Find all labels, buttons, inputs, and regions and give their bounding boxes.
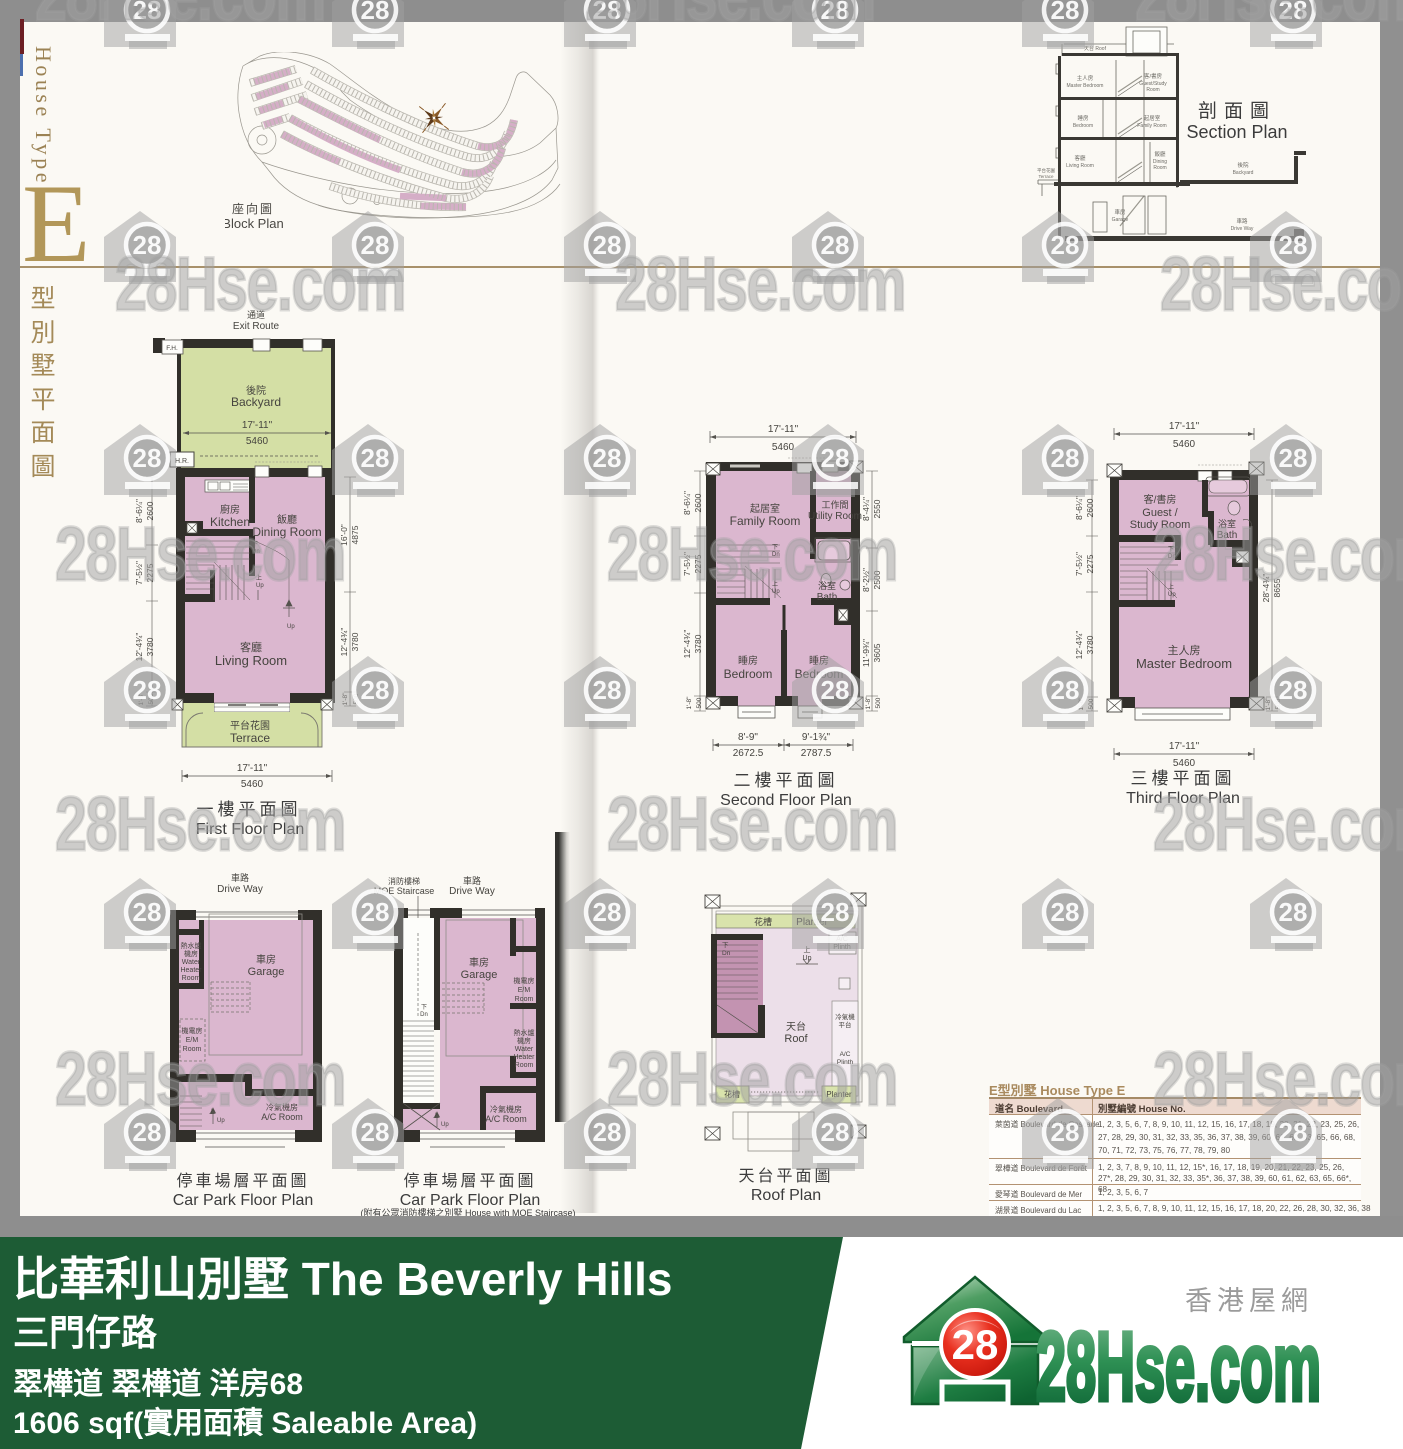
svg-text:1'-8": 1'-8" (686, 696, 693, 710)
svg-text:H.R.: H.R. (175, 458, 189, 465)
svg-text:Up: Up (287, 624, 295, 630)
svg-text:Dining Room: Dining Room (252, 525, 321, 539)
svg-text:First Floor Plan: First Floor Plan (196, 821, 304, 838)
svg-text:17'-11": 17'-11" (1169, 421, 1200, 432)
svg-text:500: 500 (1088, 698, 1095, 709)
svg-text:1'-8": 1'-8" (1078, 697, 1085, 711)
svg-text:上: 上 (804, 945, 811, 954)
svg-text:7'-5½": 7'-5½" (682, 552, 692, 576)
svg-text:Roof Plan: Roof Plan (751, 1187, 821, 1204)
svg-text:2550: 2550 (872, 499, 882, 518)
svg-text:上: 上 (772, 580, 778, 588)
svg-text:Room: Room (515, 996, 534, 1003)
svg-text:Dn: Dn (420, 1012, 428, 1018)
svg-text:Bedroom: Bedroom (724, 667, 773, 681)
svg-text:Backyard: Backyard (1233, 170, 1254, 176)
svg-text:Drive Way: Drive Way (449, 886, 495, 897)
svg-text:F.H.: F.H. (166, 345, 178, 352)
svg-text:Room: Room (515, 1062, 534, 1069)
svg-text:下: 下 (1168, 546, 1174, 553)
svg-text:A/C Room: A/C Room (485, 1114, 527, 1124)
svg-text:Bedroom: Bedroom (1073, 123, 1093, 129)
svg-text:Dn: Dn (252, 549, 260, 555)
svg-text:Bath: Bath (1217, 530, 1238, 541)
svg-text:車路: 車路 (231, 872, 249, 883)
svg-text:Terrace: Terrace (230, 731, 270, 745)
svg-text:2600: 2600 (1085, 498, 1095, 517)
svg-text:5460: 5460 (241, 779, 264, 790)
svg-text:Plinth: Plinth (837, 1059, 854, 1066)
svg-text:8'-6¼": 8'-6¼" (682, 491, 692, 515)
svg-text:5460: 5460 (772, 442, 795, 453)
svg-text:17'-11": 17'-11" (242, 420, 273, 431)
svg-text:機房: 機房 (184, 949, 198, 958)
svg-text:Living Room: Living Room (215, 653, 287, 668)
svg-text:睡房: 睡房 (809, 654, 829, 667)
svg-text:Up: Up (256, 583, 264, 589)
svg-text:Terrace: Terrace (1038, 174, 1054, 179)
svg-text:2672.5: 2672.5 (733, 748, 764, 759)
svg-text:Bedroom: Bedroom (795, 667, 844, 681)
svg-text:Up: Up (1168, 592, 1176, 598)
svg-text:客廳: 客廳 (240, 640, 262, 654)
svg-text:下: 下 (722, 941, 729, 949)
svg-text:通道: 通道 (247, 309, 265, 320)
svg-text:12'-4¾": 12'-4¾" (134, 633, 144, 662)
svg-text:3780: 3780 (145, 637, 155, 656)
svg-text:車房: 車房 (1114, 208, 1126, 216)
svg-text:8'-6¼": 8'-6¼" (134, 499, 144, 523)
svg-text:二樓平面圖: 二樓平面圖 (734, 771, 839, 790)
svg-text:1'-8": 1'-8" (342, 692, 349, 706)
svg-text:Heater: Heater (513, 1054, 535, 1061)
svg-text:機房: 機房 (517, 1036, 531, 1045)
svg-text:客/書房: 客/書房 (1144, 493, 1177, 506)
svg-text:Up: Up (217, 1118, 225, 1124)
svg-text:天台平面圖: 天台平面圖 (738, 1167, 833, 1185)
svg-text:Room: Room (183, 1046, 202, 1053)
svg-text:Room: Room (1153, 165, 1166, 171)
svg-text:Dn: Dn (722, 950, 731, 957)
svg-text:Backyard: Backyard (231, 395, 281, 409)
svg-text:500: 500 (875, 697, 882, 708)
svg-text:天台: 天台 (786, 1020, 806, 1033)
svg-text:Car Park Floor Plan: Car Park Floor Plan (400, 1192, 541, 1209)
svg-text:7'-5½": 7'-5½" (134, 561, 144, 585)
svg-text:7'-5½": 7'-5½" (1074, 552, 1084, 576)
svg-text:5460: 5460 (1173, 758, 1196, 769)
svg-text:Third Floor Plan: Third Floor Plan (1126, 790, 1240, 807)
svg-text:Garage: Garage (1112, 217, 1129, 223)
svg-text:Dn: Dn (1168, 554, 1176, 560)
svg-text:500: 500 (148, 693, 155, 704)
svg-text:熱水爐: 熱水爐 (181, 941, 202, 950)
svg-text:Master Bedroom: Master Bedroom (1136, 656, 1232, 671)
svg-text:Drive Way: Drive Way (1231, 226, 1254, 232)
svg-text:Room: Room (1146, 87, 1159, 93)
svg-text:客/書房: 客/書房 (1144, 72, 1163, 80)
svg-text:車房: 車房 (256, 953, 276, 966)
svg-text:8'-6¼": 8'-6¼" (1074, 496, 1084, 520)
svg-text:28: 28 (952, 1321, 999, 1368)
svg-text:Dn: Dn (772, 552, 780, 558)
svg-text:機電房: 機電房 (182, 1026, 203, 1035)
svg-text:Utility Room: Utility Room (808, 511, 862, 522)
svg-text:客廳: 客廳 (1074, 154, 1086, 162)
svg-text:1'-8": 1'-8" (138, 692, 145, 706)
svg-text:Water: Water (515, 1046, 534, 1053)
svg-text:剖面圖: 剖面圖 (1198, 100, 1276, 122)
svg-text:Block Plan: Block Plan (225, 216, 284, 231)
svg-text:8'-2½": 8'-2½" (861, 568, 871, 592)
svg-text:停車場層平面圖: 停車場層平面圖 (176, 1172, 309, 1190)
svg-text:Garage: Garage (248, 966, 285, 978)
svg-text:主人房: 主人房 (1077, 74, 1094, 82)
svg-text:2600: 2600 (693, 493, 703, 512)
svg-text:Family Room: Family Room (730, 514, 801, 528)
svg-text:Second Floor Plan: Second Floor Plan (720, 792, 852, 809)
svg-text:500: 500 (696, 697, 703, 708)
svg-text:Roof: Roof (784, 1033, 808, 1045)
svg-text:天台 Roof: 天台 Roof (1084, 45, 1107, 52)
svg-text:停車場層平面圖: 停車場層平面圖 (403, 1172, 536, 1190)
svg-text:起居室: 起居室 (1144, 114, 1161, 122)
svg-text:12'-4¾": 12'-4¾" (1074, 631, 1084, 660)
svg-text:Up: Up (772, 589, 780, 595)
svg-text:A/C: A/C (840, 1051, 851, 1058)
svg-text:Study Room: Study Room (1130, 519, 1191, 531)
svg-text:17'-11": 17'-11" (1169, 741, 1200, 752)
svg-text:16'-0": 16'-0" (339, 524, 349, 546)
svg-text:車房: 車房 (469, 956, 489, 969)
svg-text:Up: Up (441, 1122, 449, 1128)
svg-text:Family Room: Family Room (1137, 123, 1166, 129)
svg-text:A/C: A/C (836, 936, 848, 943)
svg-text:浴室: 浴室 (1218, 518, 1236, 529)
svg-text:上: 上 (433, 1112, 439, 1120)
svg-text:11'-9¾": 11'-9¾" (861, 639, 871, 667)
svg-text:睡房: 睡房 (1077, 114, 1089, 122)
svg-text:17'-11": 17'-11" (237, 763, 268, 774)
svg-text:冷氣機房: 冷氣機房 (266, 1102, 298, 1112)
svg-text:A/C Room: A/C Room (261, 1112, 303, 1122)
svg-text:4875: 4875 (350, 525, 360, 544)
svg-text:座向圖: 座向圖 (232, 201, 274, 216)
svg-text:3780: 3780 (350, 632, 360, 651)
svg-text:8655: 8655 (1272, 578, 1282, 597)
svg-text:2275: 2275 (1085, 554, 1095, 573)
svg-text:2787.5: 2787.5 (801, 748, 832, 759)
svg-text:工作間: 工作間 (821, 499, 848, 510)
svg-text:5460: 5460 (1173, 439, 1196, 450)
svg-text:一樓平面圖: 一樓平面圖 (197, 800, 302, 819)
svg-text:花槽: 花槽 (754, 916, 772, 927)
svg-text:消防樓梯: 消防樓梯 (388, 876, 420, 886)
svg-text:Car Park Floor Plan: Car Park Floor Plan (173, 1192, 314, 1209)
svg-text:Exit Route: Exit Route (233, 321, 280, 332)
svg-text:3605: 3605 (872, 643, 882, 662)
svg-text:Guest /: Guest / (1142, 507, 1178, 519)
svg-text:Water: Water (182, 959, 201, 966)
svg-text:8'-9": 8'-9" (738, 732, 758, 743)
svg-text:Bath: Bath (817, 592, 838, 603)
svg-text:浴室: 浴室 (818, 580, 836, 591)
svg-text:2500: 2500 (872, 570, 882, 589)
svg-text:Heater: Heater (180, 967, 202, 974)
svg-text:2275: 2275 (693, 554, 703, 573)
svg-text:Room: Room (182, 975, 201, 982)
svg-text:三樓平面圖: 三樓平面圖 (1131, 769, 1236, 788)
svg-text:12'-4¾": 12'-4¾" (339, 628, 349, 657)
svg-text:花槽: 花槽 (724, 1089, 740, 1099)
svg-text:Master Bedroom: Master Bedroom (1067, 83, 1104, 89)
svg-text:機電房: 機電房 (514, 976, 535, 985)
svg-text:1'-8": 1'-8" (1265, 697, 1272, 711)
svg-text:車路: 車路 (1236, 217, 1248, 225)
svg-text:500: 500 (1275, 698, 1282, 709)
svg-text:1'-8": 1'-8" (865, 696, 872, 710)
svg-text:Kitchen: Kitchen (210, 515, 250, 529)
svg-text:3780: 3780 (693, 634, 703, 653)
svg-text:香港屋網: 香港屋網 (1185, 1286, 1313, 1316)
svg-text:Planter: Planter (796, 917, 828, 928)
svg-text:上: 上 (1168, 583, 1174, 591)
svg-text:500: 500 (353, 693, 360, 704)
svg-text:上: 上 (209, 1108, 215, 1116)
svg-text:E/M: E/M (186, 1037, 199, 1044)
svg-text:MOE Staircase: MOE Staircase (374, 886, 435, 896)
svg-text:Drive Way: Drive Way (217, 884, 263, 895)
svg-text:Up: Up (803, 955, 812, 962)
svg-text:後院: 後院 (1237, 161, 1249, 169)
svg-text:飯廳: 飯廳 (1154, 150, 1166, 158)
svg-text:9'-1¾": 9'-1¾" (802, 732, 831, 743)
svg-text:3780: 3780 (1085, 635, 1095, 654)
svg-text:Planter: Planter (826, 1090, 852, 1099)
svg-text:冷氣機房: 冷氣機房 (490, 1104, 522, 1114)
svg-text:8'-4¼": 8'-4¼" (861, 497, 871, 521)
svg-text:Section Plan: Section Plan (1186, 122, 1287, 142)
svg-text:平台: 平台 (839, 1020, 852, 1029)
svg-text:熱水爐: 熱水爐 (514, 1028, 535, 1037)
svg-text:E/M: E/M (518, 987, 531, 994)
svg-text:車路: 車路 (463, 875, 481, 886)
svg-text:5460: 5460 (246, 436, 269, 447)
svg-text:下: 下 (772, 544, 778, 551)
svg-text:平台花園: 平台花園 (1037, 167, 1055, 174)
svg-text:12'-4¾": 12'-4¾" (682, 630, 692, 659)
svg-text:睡房: 睡房 (738, 654, 758, 667)
svg-text:Garage: Garage (461, 969, 498, 981)
svg-text:2275: 2275 (145, 563, 155, 582)
svg-text:上: 上 (256, 574, 262, 582)
svg-text:28'-4¾": 28'-4¾" (1261, 574, 1271, 603)
svg-text:2600: 2600 (145, 501, 155, 520)
svg-text:Plinth: Plinth (833, 944, 851, 951)
svg-text:下: 下 (421, 1004, 427, 1011)
svg-text:Living Room: Living Room (1066, 163, 1094, 169)
svg-text:28Hse.com: 28Hse.com (1036, 1312, 1321, 1421)
svg-text:17'-11": 17'-11" (768, 424, 799, 435)
svg-text:冷氣機: 冷氣機 (835, 1012, 855, 1021)
